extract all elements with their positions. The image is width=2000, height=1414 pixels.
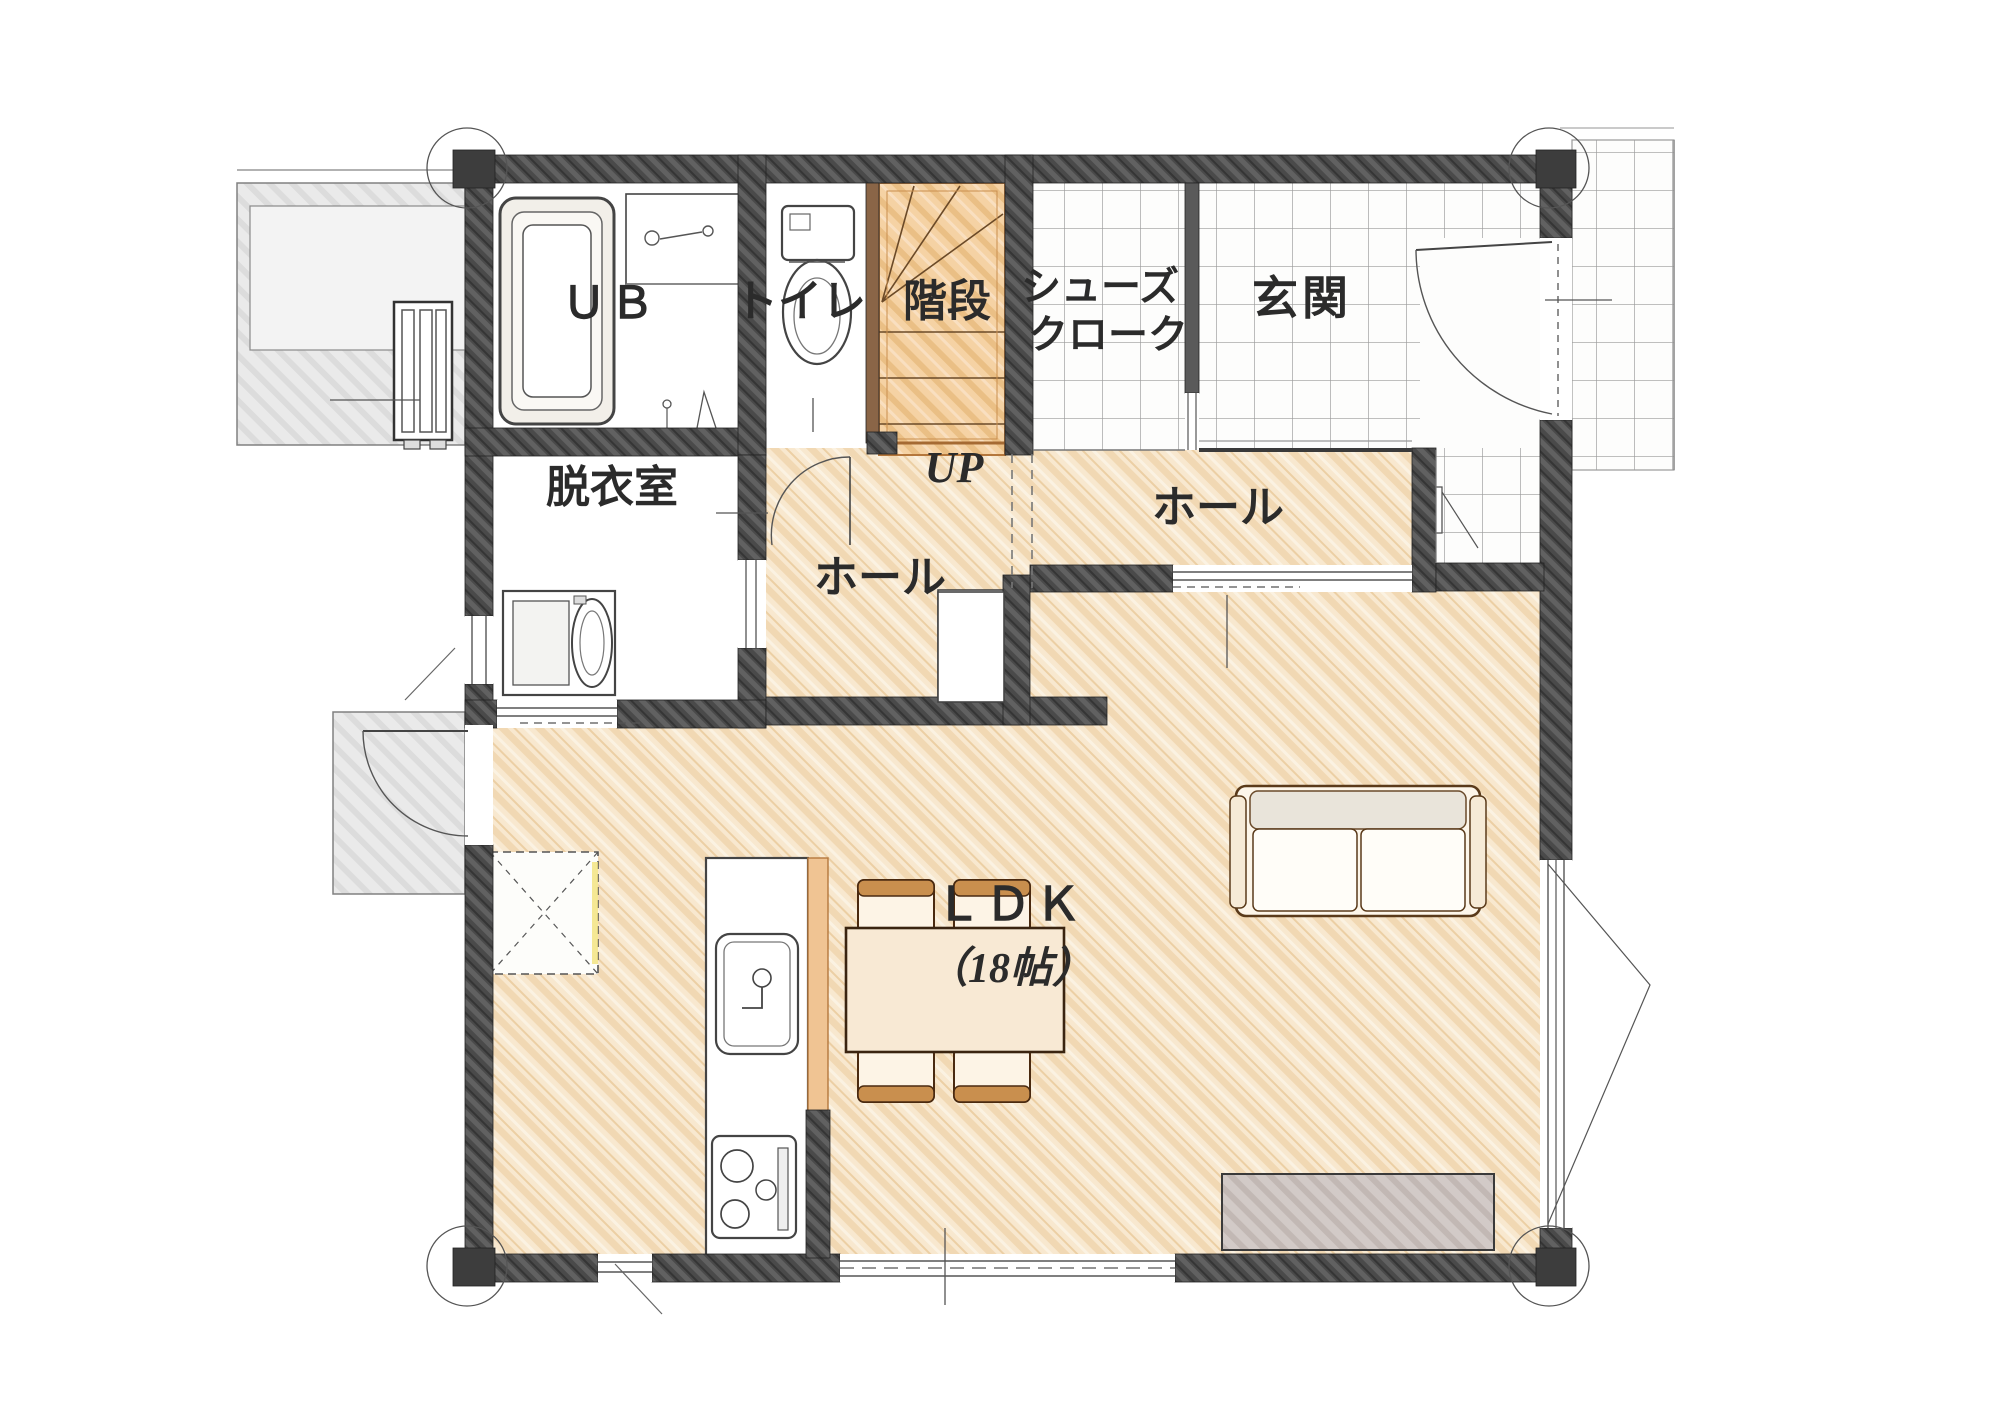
- room-label-ldk-size: （18帖）: [926, 945, 1094, 992]
- gas-cooktop-icon: [712, 1136, 796, 1238]
- dining-chair: [858, 880, 934, 934]
- door-shoescloak: [1185, 393, 1199, 450]
- sliding-door-hall-ldk: [1173, 565, 1412, 592]
- floor-plan-page: ＵＢ トイレ 階段 シューズ クローク 玄関 ホール ホール 脱衣室 ＬＤＫ （…: [0, 0, 2000, 1414]
- room-label-shoescloak-line1: シューズ: [1021, 265, 1179, 309]
- sofa: [1230, 786, 1486, 916]
- stairs-up-label: UP: [925, 443, 985, 492]
- floor-plan-drawing: ＵＢ トイレ 階段 シューズ クローク 玄関 ホール ホール 脱衣室 ＬＤＫ （…: [0, 0, 2000, 1414]
- wall-west-lower: [465, 845, 493, 1282]
- wall-toilet-door-jamb: [867, 432, 897, 454]
- wall-kitchen-stub: [806, 1110, 830, 1258]
- window-east-large: [1540, 860, 1650, 1228]
- kitchen-sink-icon: [716, 934, 798, 1054]
- sliding-door-dressing-east: [738, 560, 766, 648]
- wall-hall-south-west: [1030, 565, 1173, 592]
- room-label-ldk: ＬＤＫ: [935, 878, 1085, 930]
- hall-closet-front: [938, 592, 1004, 702]
- tv-board: [1222, 1174, 1494, 1250]
- outdoor-unit: [394, 302, 452, 449]
- corner-column-se: [1536, 1248, 1576, 1286]
- room-label-hall-center: ホール: [814, 553, 946, 602]
- wall-east-mid: [1540, 420, 1572, 860]
- wall-dressing-south-2: [617, 700, 766, 728]
- wall-south-3: [1175, 1254, 1560, 1282]
- room-label-shoescloak-line2: クローク: [1028, 313, 1188, 357]
- wall-ub-south: [465, 428, 766, 456]
- dining-chair: [954, 1048, 1030, 1102]
- corner-column-ne: [1536, 150, 1576, 188]
- room-label-hall-entrance: ホール: [1152, 483, 1284, 532]
- wall-closet-east: [1003, 575, 1030, 725]
- window-south-large: [840, 1254, 1175, 1282]
- floor-hatch-icon: [490, 852, 598, 974]
- wall-dressing-south-1: [465, 700, 497, 728]
- wall-genkan-south: [1436, 563, 1544, 591]
- wall-hall-center-south: [766, 697, 1107, 725]
- room-label-ub: ＵＢ: [562, 279, 658, 328]
- corner-column-sw: [453, 1248, 495, 1286]
- wall-shoescloak-genkan-divider: [1185, 183, 1199, 393]
- room-label-stairs: 階段: [903, 277, 991, 326]
- wall-hall-genkan-stub: [1412, 448, 1436, 592]
- room-label-toilet: トイレ: [734, 277, 866, 326]
- wall-dressing-east-upper: [738, 455, 766, 560]
- entrance-porch: [1572, 140, 1674, 470]
- room-label-dressing: 脱衣室: [546, 462, 678, 512]
- washing-machine-icon: [503, 591, 615, 695]
- room-label-genkan: 玄関: [1252, 272, 1352, 324]
- exterior-landing: [333, 712, 465, 894]
- wall-west-upper: [465, 155, 493, 616]
- genkan-door-swing-area: [1420, 238, 1540, 448]
- wall-toilet-stairs-divider: [866, 183, 879, 443]
- dining-chair: [858, 1048, 934, 1102]
- corner-column-nw: [453, 150, 495, 188]
- vanity-counter-icon: [626, 194, 748, 284]
- floor-genkan-pocket: [1436, 450, 1544, 563]
